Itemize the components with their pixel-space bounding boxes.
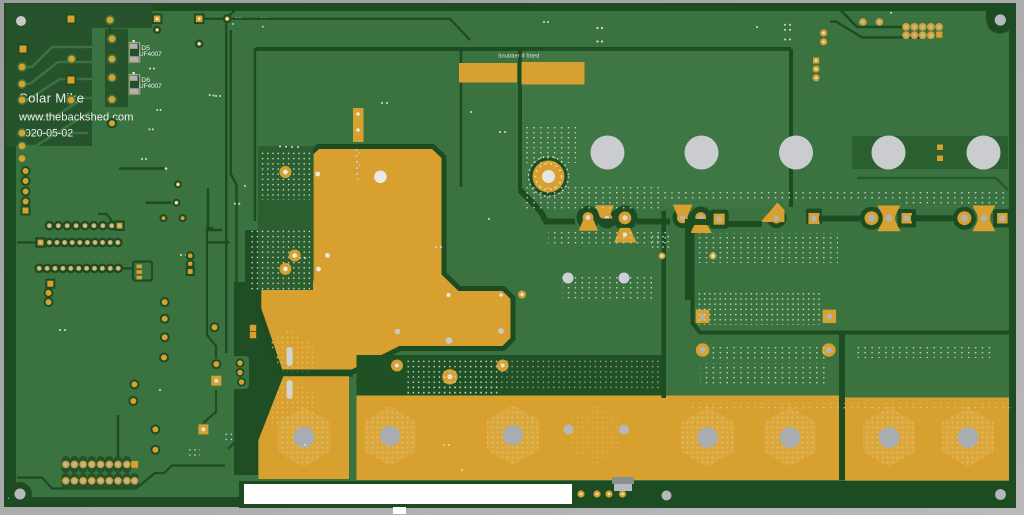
svg-text:UF4007: UF4007 — [139, 83, 162, 90]
svg-text:Snubber if fitted: Snubber if fitted — [498, 54, 539, 60]
svg-text:2020-05-02: 2020-05-02 — [19, 128, 73, 140]
svg-text:UF4007: UF4007 — [139, 51, 162, 58]
